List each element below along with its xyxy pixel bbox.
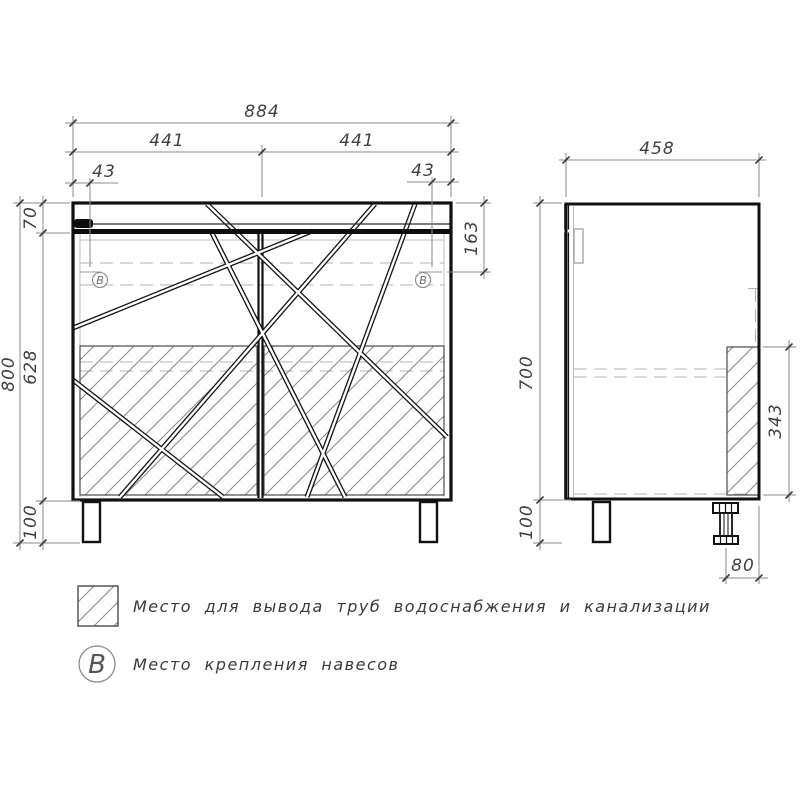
dim-side-depth: 458 <box>639 139 674 159</box>
technical-drawing-page: В В <box>0 0 800 800</box>
dim-front-leg-height: 100 <box>21 504 41 539</box>
side-adjustable-foot <box>713 503 738 544</box>
dim-side-leg-height: 100 <box>517 504 537 539</box>
dim-front-top-band-height: 70 <box>21 206 41 230</box>
front-top-band <box>73 219 451 232</box>
front-door-divider <box>259 233 263 498</box>
legend-mount-label: Место крепления навесов <box>133 655 399 674</box>
side-view: 458 700 343 100 80 <box>517 139 796 584</box>
mount-marker-right-label: В <box>419 274 427 287</box>
dim-front-mount-from-top: 163 <box>462 220 482 255</box>
dim-front-left-mount-offset: 43 <box>92 162 116 182</box>
dim-front-right-mount-offset: 43 <box>411 161 435 181</box>
dim-front-total-height: 800 <box>0 356 19 391</box>
front-legs <box>83 502 437 542</box>
legend-hatch-symbol <box>78 586 118 626</box>
legend-pipe-zone-label: Место для вывода труб водоснабжения и ка… <box>133 597 711 616</box>
front-view: В В <box>0 102 491 550</box>
dim-front-overall-width: 884 <box>244 102 279 122</box>
front-right-leg <box>420 502 437 542</box>
mount-marker-left-label: В <box>96 274 104 287</box>
front-left-leg <box>83 502 100 542</box>
side-pipe-zone-hatch <box>727 347 759 495</box>
legend-mount-symbol-letter: В <box>88 650 106 680</box>
vanity-cabinet-drawing: В В <box>0 0 800 800</box>
dim-side-pipe-zone-height: 343 <box>766 403 786 438</box>
legend: Место для вывода труб водоснабжения и ка… <box>78 586 711 682</box>
dim-side-foot-offset: 80 <box>731 556 755 576</box>
side-front-leg <box>593 502 610 542</box>
side-handle <box>574 229 583 263</box>
dim-front-right-section: 441 <box>339 131 374 151</box>
dim-front-body-height: 628 <box>21 349 41 384</box>
dim-side-body-height: 700 <box>517 355 537 390</box>
dim-front-left-section: 441 <box>149 131 184 151</box>
